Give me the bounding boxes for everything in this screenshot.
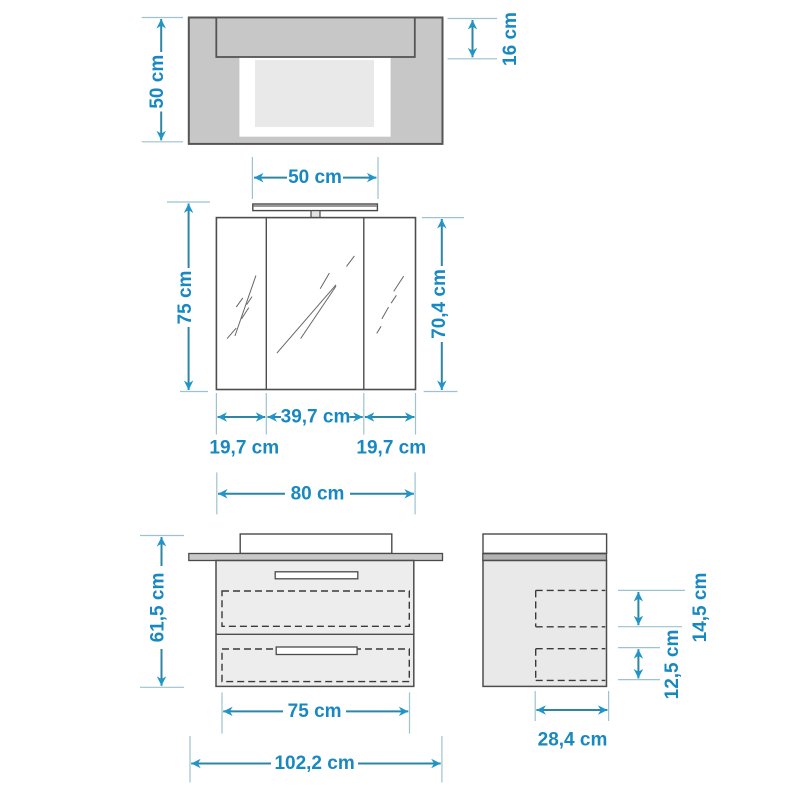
svg-text:14,5 cm: 14,5 cm bbox=[690, 573, 711, 643]
svg-text:12,5 cm: 12,5 cm bbox=[662, 630, 683, 700]
svg-text:75 cm: 75 cm bbox=[288, 701, 342, 722]
svg-text:102,2 cm: 102,2 cm bbox=[274, 753, 354, 774]
svg-text:50 cm: 50 cm bbox=[288, 167, 342, 188]
svg-text:16 cm: 16 cm bbox=[500, 12, 521, 66]
svg-text:19,7 cm: 19,7 cm bbox=[209, 438, 279, 459]
svg-text:75 cm: 75 cm bbox=[175, 271, 196, 325]
svg-text:61,5 cm: 61,5 cm bbox=[148, 573, 169, 643]
svg-text:39,7 cm: 39,7 cm bbox=[281, 407, 351, 428]
svg-text:19,7 cm: 19,7 cm bbox=[356, 438, 426, 459]
svg-text:70,4 cm: 70,4 cm bbox=[429, 269, 450, 339]
svg-text:50 cm: 50 cm bbox=[147, 55, 168, 109]
svg-text:80 cm: 80 cm bbox=[291, 483, 345, 504]
svg-text:28,4 cm: 28,4 cm bbox=[538, 730, 608, 751]
